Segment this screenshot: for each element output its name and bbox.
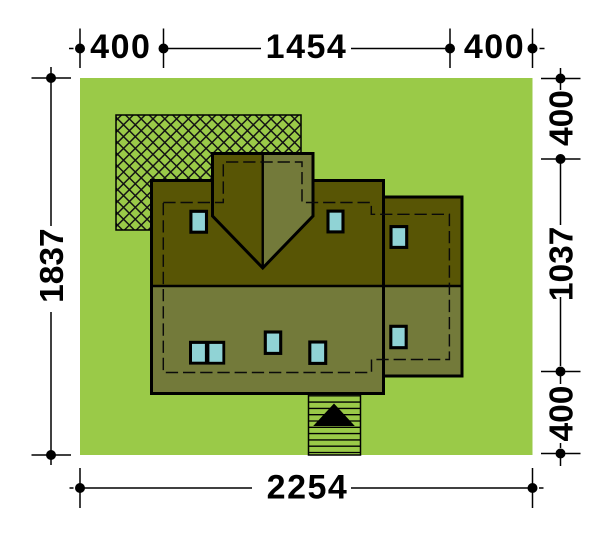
svg-text:2254: 2254	[267, 469, 349, 507]
svg-text:1454: 1454	[266, 28, 348, 66]
svg-text:1837: 1837	[34, 228, 71, 303]
svg-text:1037: 1037	[544, 227, 581, 302]
svg-text:400: 400	[544, 90, 581, 146]
svg-text:400: 400	[544, 386, 581, 442]
svg-text:400: 400	[464, 28, 525, 66]
svg-text:400: 400	[90, 28, 151, 66]
